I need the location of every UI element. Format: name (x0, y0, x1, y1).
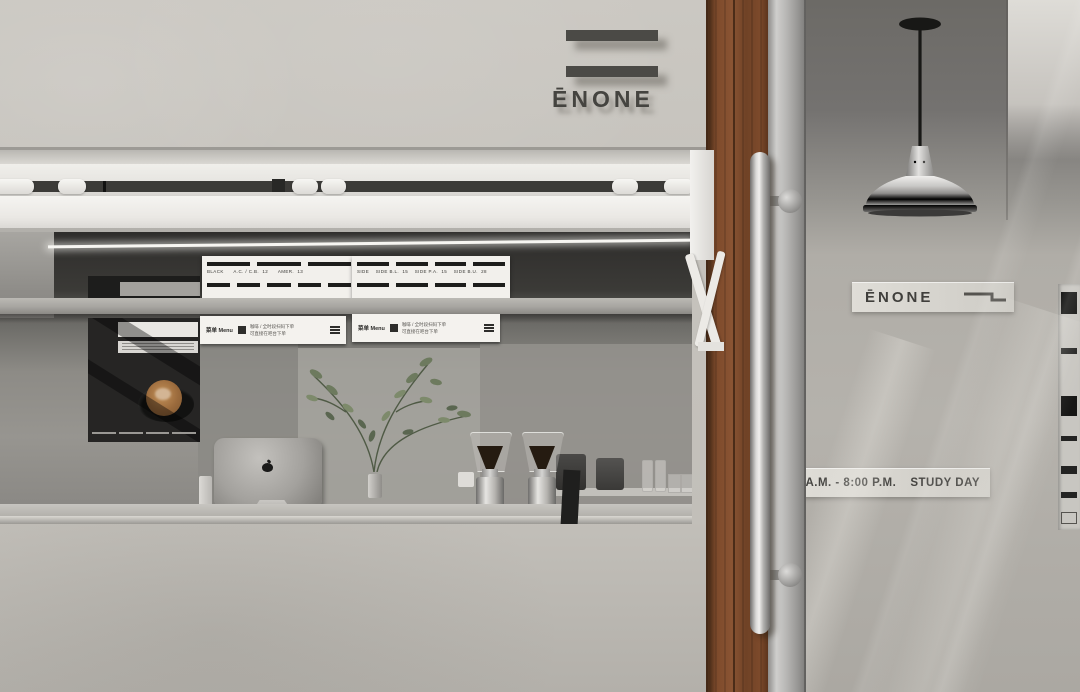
menu-line (473, 283, 505, 287)
lamp-shade-opening (868, 210, 972, 217)
menu-board-text: BLACK A.C. / C.B. 12 AMER. 13 (207, 269, 351, 281)
brand-logo: ĒNONE (552, 22, 682, 114)
window-sill (0, 196, 712, 232)
hinge-sleeve (292, 179, 318, 194)
back-shelf-bar (120, 282, 200, 296)
door-stile-edge (804, 0, 806, 692)
pendant-lamp: 1 (858, 12, 982, 218)
grinder-collar (534, 469, 550, 477)
panel-strip (1061, 492, 1077, 498)
hinge-sleeve (321, 179, 346, 194)
drinking-glass (668, 474, 681, 493)
serving-window-opening: BLACK A.C. / C.B. 12 AMER. 13 SIDE SIDE … (0, 232, 692, 524)
linear-ceiling-light (48, 239, 692, 249)
milk-jug (368, 474, 382, 498)
menu-line (308, 262, 351, 266)
menu-line (207, 262, 250, 266)
menu-line (357, 283, 389, 287)
menu-line (298, 283, 321, 287)
qr-code-icon (238, 326, 246, 334)
menu-board-text: SIDE SIDE B.L. 15 SIDE P.A. 15 SIDE B.U.… (357, 269, 505, 281)
logo-bar-icon (566, 30, 658, 41)
hinge-pin (103, 181, 106, 192)
hinge-bracket (272, 179, 285, 192)
drinking-glass (681, 474, 692, 493)
menu-line (473, 262, 505, 266)
entry-room: 1 ĒNONE A.M. - 8:00 P.M. STUDY DAY (806, 0, 1080, 692)
panel-strip (1061, 466, 1077, 474)
counter-front-edge (0, 516, 692, 524)
brand-logo-text: ĒNONE (552, 86, 654, 113)
cup-stack (596, 458, 624, 490)
apple-logo-icon (262, 460, 273, 472)
imac-computer (214, 438, 322, 510)
counter-top (0, 504, 692, 516)
handle-mount-disc (778, 563, 802, 587)
logo-bar-icon (566, 66, 658, 77)
menu-line-row (207, 262, 351, 266)
menu-line (207, 283, 230, 287)
door-frame-seam (733, 0, 735, 692)
window-top-ledge (0, 150, 712, 164)
wall-corner (1006, 0, 1008, 220)
cafe-storefront-scene: ĒNONE BLACK A.C. / C.B. 12 AMER (0, 0, 1080, 692)
menu-line (435, 283, 467, 287)
poster-caption (92, 432, 196, 434)
window-frame-post (690, 150, 714, 260)
window-shelf (0, 298, 692, 314)
menu-line (435, 262, 467, 266)
handle-mount-disc (778, 189, 802, 213)
door-handle (750, 152, 770, 634)
latte-art-poster (88, 318, 200, 442)
lamp-shade (866, 176, 974, 205)
hinge-sleeve (58, 179, 86, 194)
support-arm-foot (698, 342, 724, 351)
grinder-collar (482, 469, 498, 477)
panel-strip (1061, 436, 1077, 441)
menu-line-row (357, 262, 505, 266)
panel-label (1061, 512, 1077, 524)
wall-sign-text: ĒNONE (852, 289, 962, 306)
menu-line (328, 283, 351, 287)
menu-line-row (357, 283, 505, 287)
menu-card-title: 菜单 Menu (206, 326, 233, 334)
lamp-neck (906, 146, 934, 176)
glass-bottle (655, 460, 666, 492)
glass-door-stile (768, 0, 806, 692)
hinge-sleeve (612, 179, 638, 194)
hinge-sleeve (0, 179, 34, 194)
panel-block (1061, 292, 1077, 314)
glass-bottle (642, 460, 653, 492)
menu-line (237, 283, 260, 287)
tamper-handle (561, 470, 581, 524)
menu-line (267, 283, 290, 287)
menu-line-row (207, 283, 351, 287)
menu-line (357, 262, 389, 266)
menu-line (396, 283, 428, 287)
ceiling-corner (1008, 0, 1080, 160)
menu-line (257, 262, 300, 266)
menu-line (396, 262, 428, 266)
lamp-cord (918, 26, 921, 148)
